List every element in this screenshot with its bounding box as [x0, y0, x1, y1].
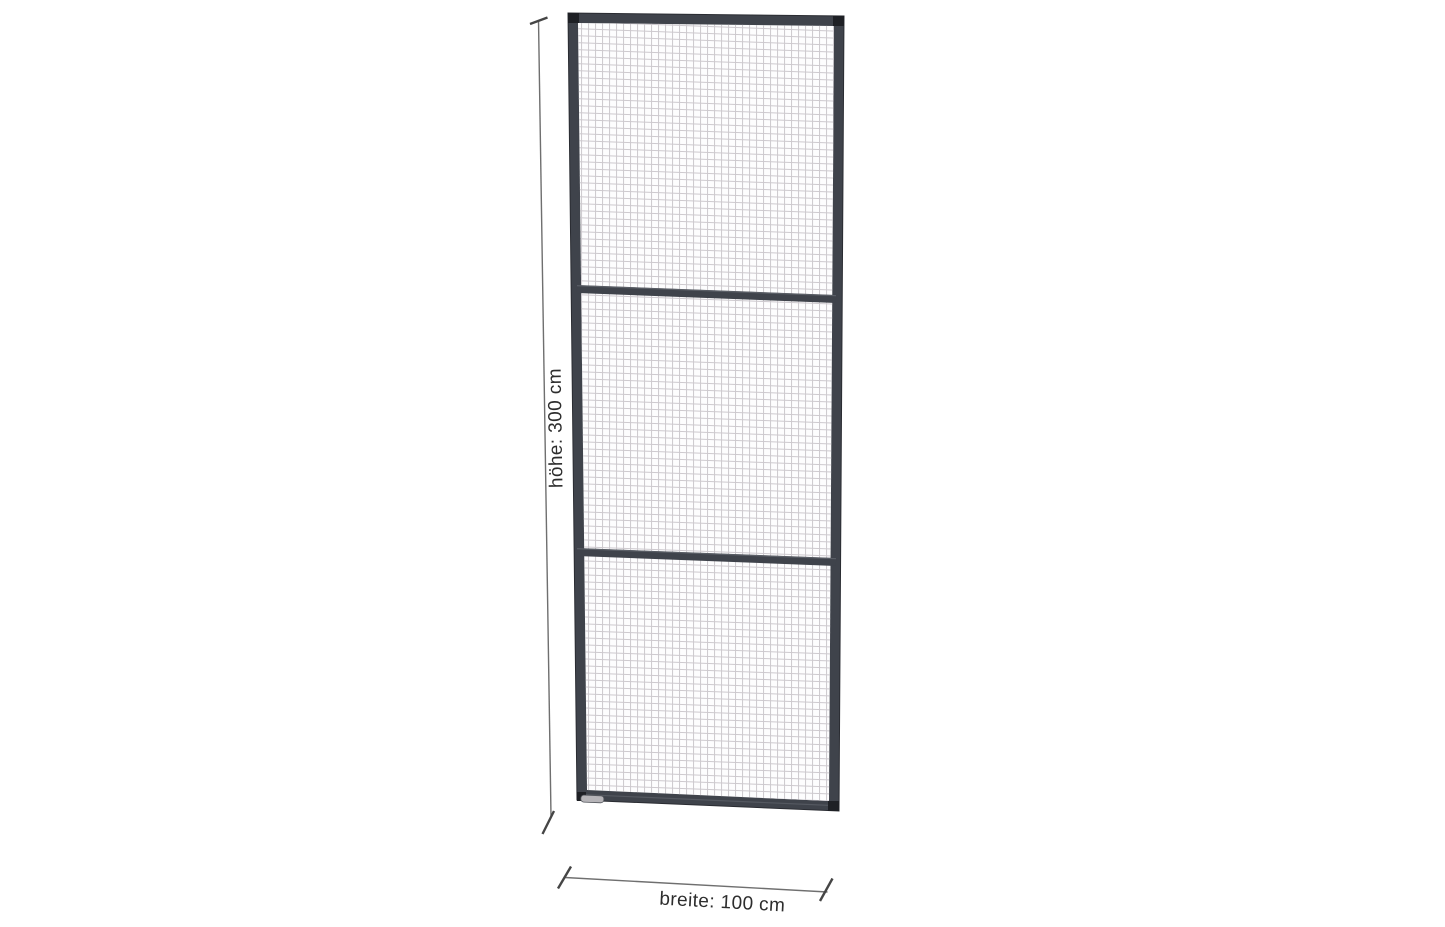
height-dimension-tick-bottom: [543, 811, 555, 834]
width-dimension-label: breite: 100 cm: [659, 889, 786, 917]
panel-mesh: [578, 23, 834, 801]
panel: [568, 13, 844, 811]
panel-technical-drawing: höhe: 300 cm breite: 100 cm: [0, 0, 1445, 927]
width-dimension: breite: 100 cm: [558, 867, 833, 917]
height-dimension-label: höhe: 300 cm: [545, 368, 568, 488]
corner-cap-bottom-right: [828, 801, 839, 811]
height-dimension: höhe: 300 cm: [530, 18, 567, 835]
corner-cap-top-right: [833, 16, 844, 26]
drawing-canvas: höhe: 300 cm breite: 100 cm: [0, 0, 1445, 927]
corner-cap-top-left: [568, 13, 579, 23]
foot-plate: [581, 795, 604, 803]
width-dimension-tick-right: [820, 879, 833, 902]
